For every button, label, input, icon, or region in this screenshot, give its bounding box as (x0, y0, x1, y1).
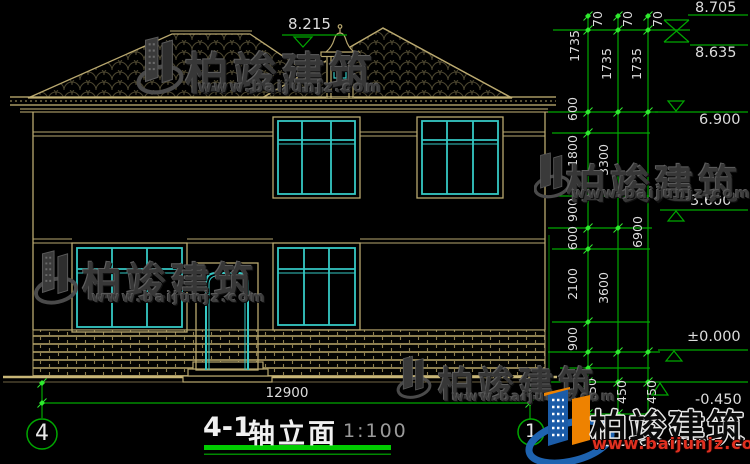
logo-site-text: www.baijunjz.com (592, 434, 750, 453)
drawing-scale: 1:100 (343, 420, 408, 442)
elevation-eave: 6.900 (699, 113, 741, 129)
roof (28, 28, 512, 98)
elevation-floor2: 3.600 (690, 194, 732, 210)
eave-fascia (10, 97, 556, 112)
dim-label-1735-c: 1735 (629, 34, 645, 94)
dim-label-1735-b: 1735 (599, 34, 615, 94)
elevation-floor1: ±0.000 (687, 330, 741, 346)
drawing-number: 4-1 (203, 412, 252, 443)
ground-line (3, 377, 557, 382)
dim-label-70-c: 70 (650, 0, 666, 49)
dim-label-3300: 3300 (596, 130, 612, 190)
window-lower-left (72, 243, 187, 332)
chimney-cupola (321, 25, 359, 98)
dim-label-12900: 12900 (257, 386, 317, 401)
elevation-ridge: 8.635 (695, 46, 737, 62)
cad-elevation-drawing: 8.215 8.705 8.635 6.900 3.600 ±0.000 -0.… (0, 0, 750, 464)
window-upper-right (417, 117, 503, 198)
dim-label-1800: 1800 (565, 121, 581, 181)
dim-label-2100: 2100 (565, 254, 581, 314)
dim-label-3600: 3600 (596, 258, 612, 318)
dim-label-6900: 6900 (630, 202, 646, 262)
drawing-title: 轴立面 (248, 412, 338, 451)
window-lower-right (273, 243, 360, 330)
brick-plinth (33, 330, 545, 376)
elevation-ridge-cap: 8.705 (695, 1, 737, 17)
roof-peak-elevation: 8.215 (288, 16, 331, 33)
axis-bubble-4: 4 (30, 421, 54, 446)
window-upper-left (273, 117, 360, 198)
walls (33, 112, 545, 330)
dim-label-1735-a: 1735 (567, 16, 583, 76)
dim-label-900-b: 900 (565, 309, 581, 369)
